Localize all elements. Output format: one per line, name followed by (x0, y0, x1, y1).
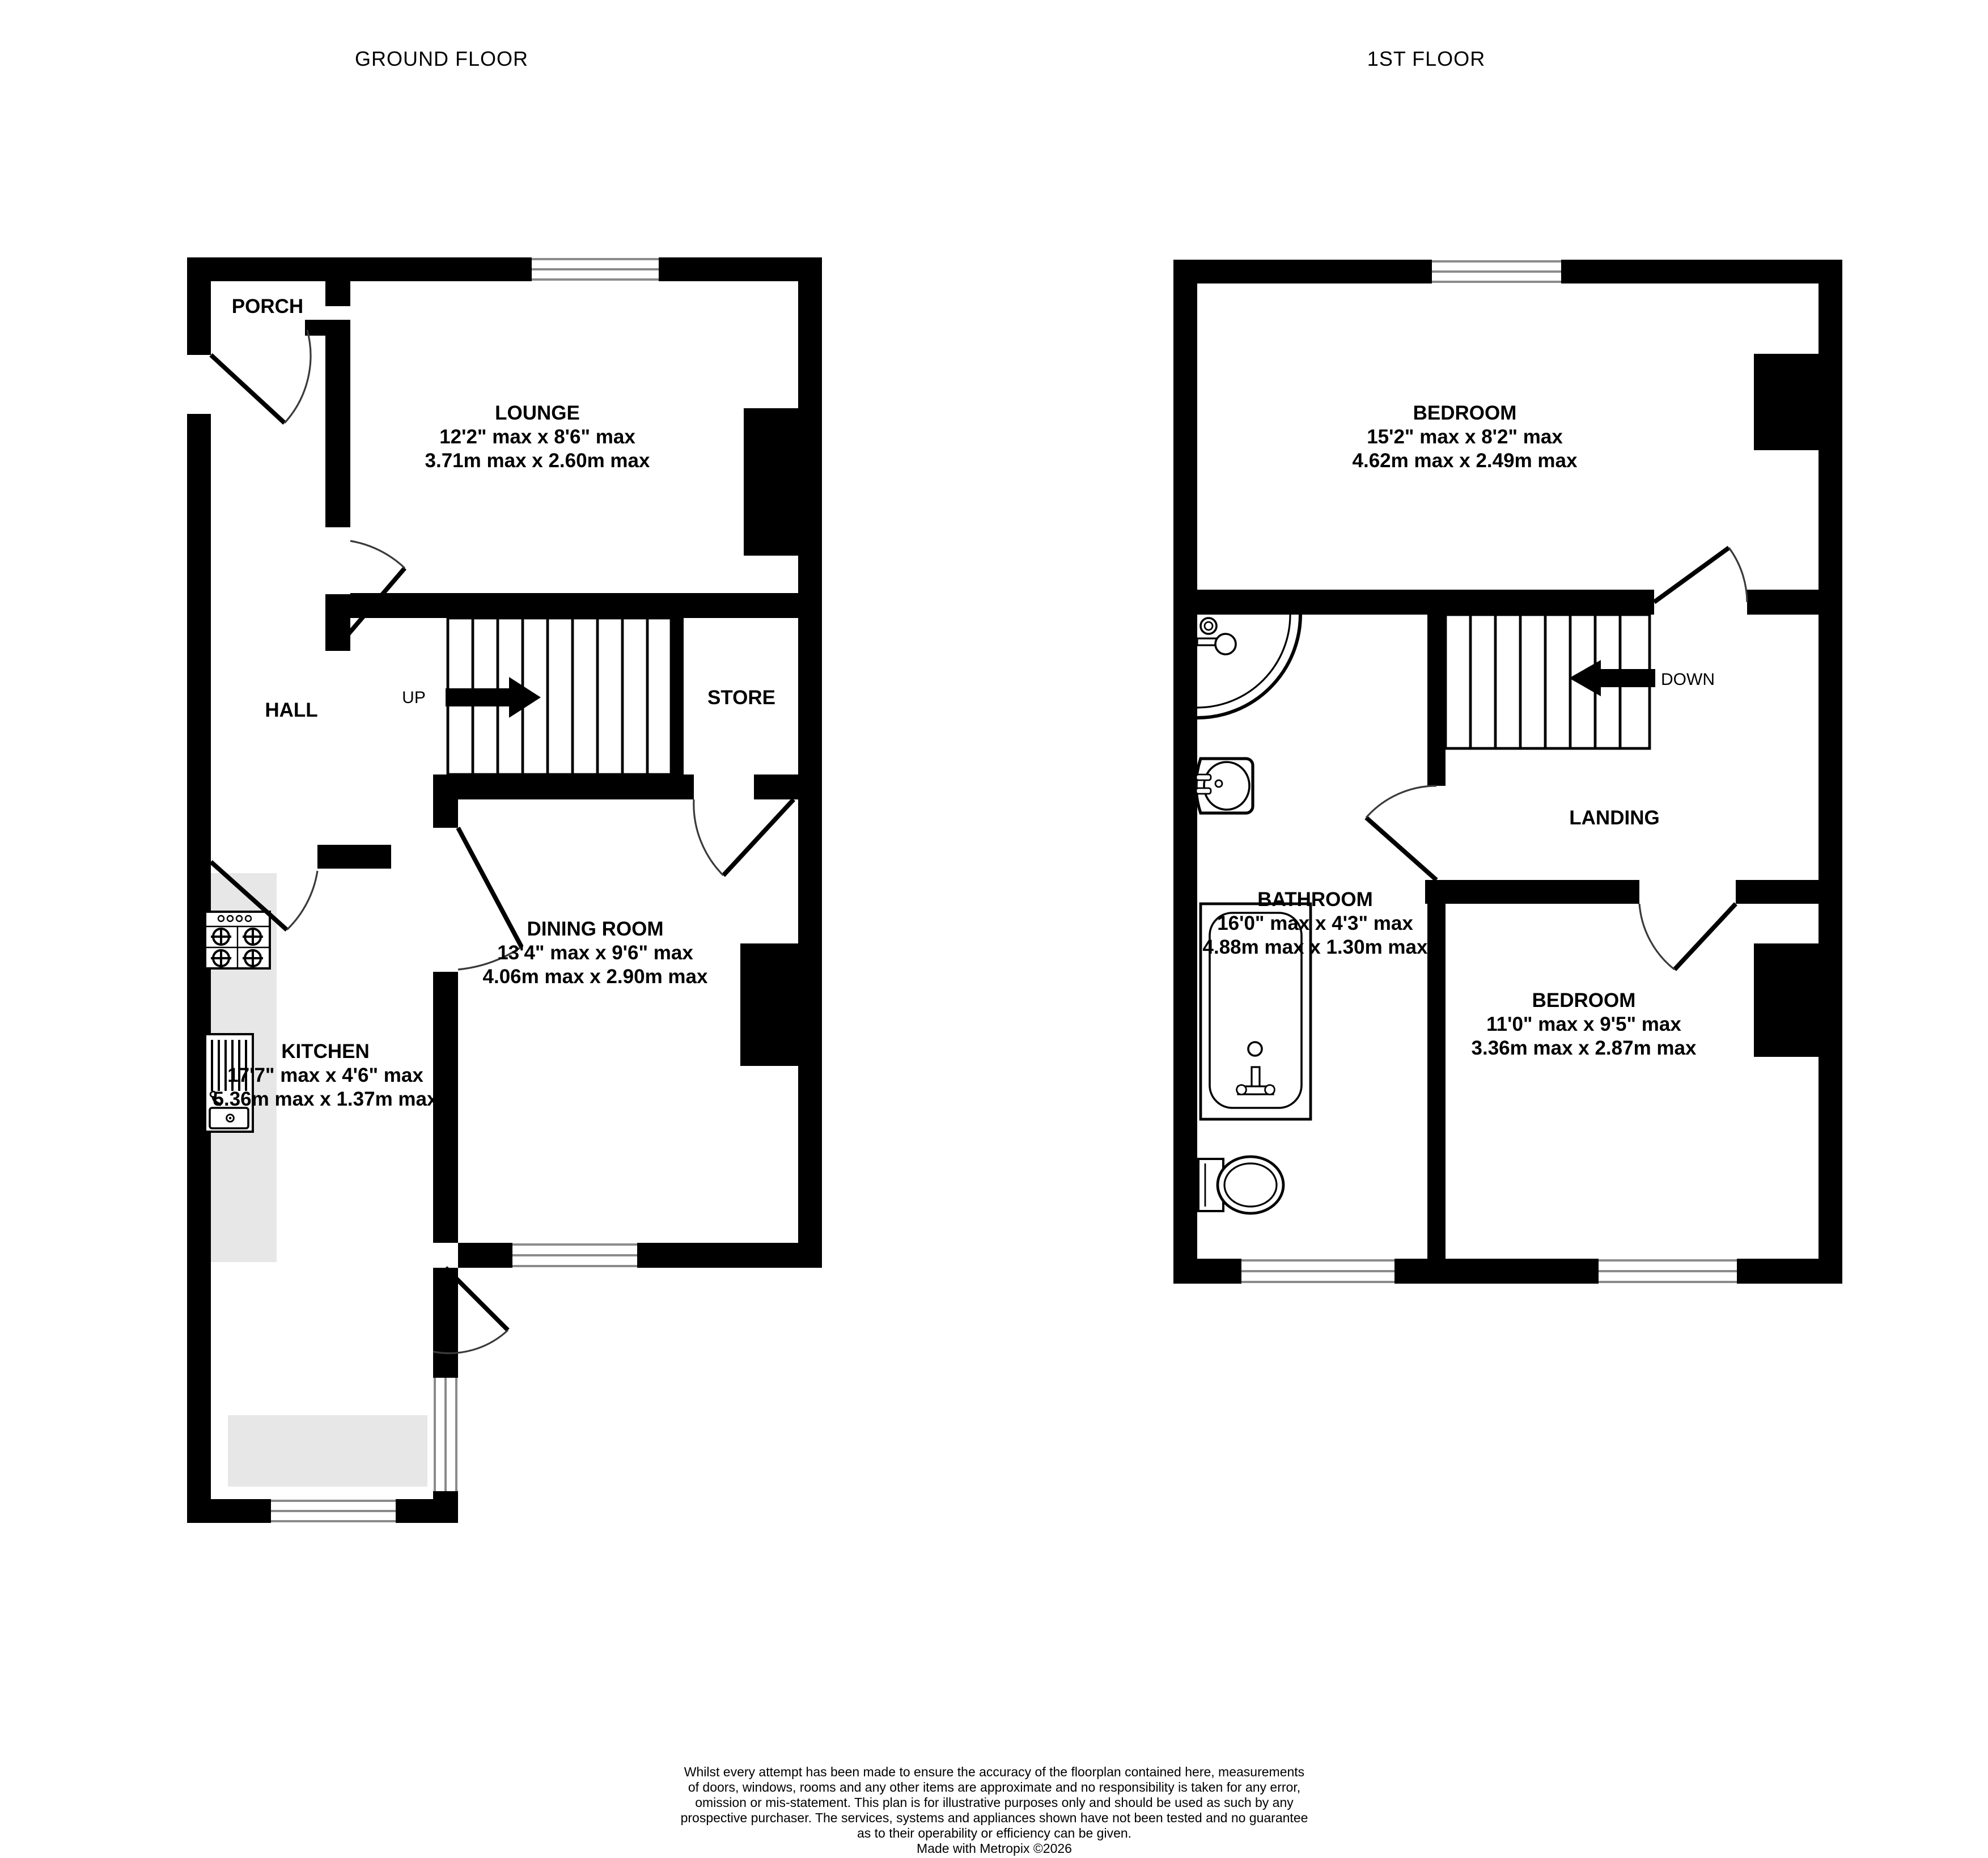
kitchen-fixtures (205, 873, 427, 1487)
bathroom-door-swing (1366, 786, 1436, 880)
disclaimer-line: Whilst every attempt has been made to en… (626, 1764, 1363, 1780)
disclaimer-line: of doors, windows, rooms and any other i… (626, 1780, 1363, 1795)
svg-text:12'2" max x 8'6" max: 12'2" max x 8'6" max (439, 426, 635, 448)
bathroom-label: BATHROOM 16'0" max x 4'3" max 4.88m max … (1203, 888, 1428, 958)
svg-text:DINING ROOM: DINING ROOM (527, 918, 663, 940)
lounge-chimney-breast (744, 408, 798, 556)
store-label: STORE (707, 687, 775, 709)
down-label: DOWN (1661, 670, 1715, 689)
basin-icon (1196, 759, 1253, 813)
svg-text:11'0" max x 9'5" max: 11'0" max x 9'5" max (1486, 1013, 1681, 1035)
kitchen-bottom-window (271, 1499, 396, 1523)
svg-text:BATHROOM: BATHROOM (1257, 888, 1373, 911)
bedroom2-window (1599, 1259, 1737, 1284)
disclaimer: Whilst every attempt has been made to en… (626, 1764, 1363, 1856)
up-label: UP (402, 688, 426, 707)
lounge-label: LOUNGE 12'2" max x 8'6" max 3.71m max x … (425, 402, 650, 472)
hall-label: HALL (265, 699, 317, 721)
first-stairs: DOWN (1446, 615, 1715, 748)
disclaimer-line: as to their operability or efficiency ca… (626, 1826, 1363, 1841)
first-floor-plan: DOWN (1173, 255, 1842, 1298)
bedroom1-chimney-breast (1754, 354, 1819, 450)
bedroom2-label: BEDROOM 11'0" max x 9'5" max 3.36m max x… (1472, 989, 1697, 1059)
ground-stairs: UP (402, 618, 671, 774)
bedroom1-door-swing (1654, 548, 1747, 602)
svg-text:4.62m max x 2.49m max: 4.62m max x 2.49m max (1353, 450, 1578, 472)
svg-text:3.36m max x 2.87m max: 3.36m max x 2.87m max (1472, 1037, 1697, 1059)
bathroom-window (1241, 1259, 1394, 1284)
svg-text:4.88m max x 1.30m max: 4.88m max x 1.30m max (1203, 936, 1428, 958)
metropix-credit: Made with Metropix ©2026 (626, 1841, 1363, 1856)
shower-icon (1197, 615, 1300, 718)
svg-text:BEDROOM: BEDROOM (1413, 402, 1517, 424)
toilet-icon (1198, 1157, 1283, 1213)
ground-floor-plan: UP PORCH LOUNGE 12'2" max x 8'6" max 3.7… (187, 255, 822, 1571)
ground-floor-title: GROUND FLOOR (272, 47, 612, 71)
lounge-window (532, 257, 659, 281)
store-door-swing (694, 799, 794, 875)
first-floor-title: 1ST FLOOR (1256, 47, 1596, 71)
kitchen-counter-bottom (228, 1415, 427, 1487)
kitchen-side-window (433, 1378, 458, 1491)
ground-doors (211, 330, 794, 1353)
floorplan-page: GROUND FLOOR 1ST FLOOR (0, 0, 1988, 1858)
disclaimer-line: omission or mis-statement. This plan is … (626, 1795, 1363, 1810)
svg-text:4.06m max x 2.90m max: 4.06m max x 2.90m max (483, 966, 708, 988)
svg-text:15'2" max x 8'2" max: 15'2" max x 8'2" max (1367, 426, 1563, 448)
svg-text:BEDROOM: BEDROOM (1532, 989, 1636, 1011)
svg-text:17'7" max x 4'6" max: 17'7" max x 4'6" max (227, 1064, 423, 1086)
svg-text:13'4" max x 9'6" max: 13'4" max x 9'6" max (497, 942, 693, 964)
dining-label: DINING ROOM 13'4" max x 9'6" max 4.06m m… (483, 918, 708, 988)
stove-icon (205, 912, 270, 968)
bedroom2-chimney-breast (1754, 943, 1819, 1057)
svg-text:LOUNGE: LOUNGE (495, 402, 580, 424)
landing-label: LANDING (1569, 807, 1659, 829)
bedroom1-window (1432, 260, 1561, 283)
front-door-swing (211, 330, 311, 423)
bedroom1-label: BEDROOM 15'2" max x 8'2" max 4.62m max x… (1353, 402, 1578, 472)
svg-text:5.36m max x 1.37m max: 5.36m max x 1.37m max (213, 1088, 438, 1110)
bedroom2-door-swing (1639, 904, 1736, 970)
svg-text:3.71m max x 2.60m max: 3.71m max x 2.60m max (425, 450, 650, 472)
disclaimer-line: prospective purchaser. The services, sys… (626, 1810, 1363, 1826)
svg-text:16'0" max x 4'3" max: 16'0" max x 4'3" max (1217, 912, 1413, 934)
svg-text:KITCHEN: KITCHEN (281, 1040, 370, 1063)
dining-window (512, 1243, 637, 1268)
dining-chimney-breast (740, 943, 798, 1066)
porch-label: PORCH (232, 295, 303, 318)
